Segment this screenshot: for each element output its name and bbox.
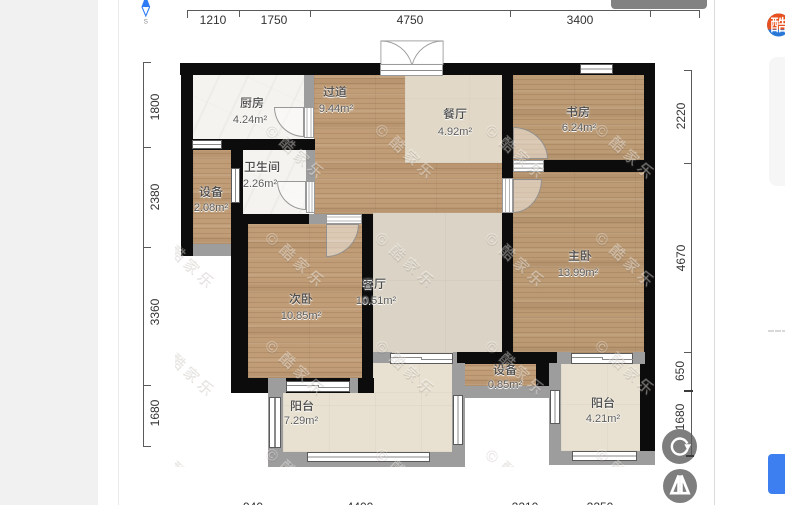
svg-text:©: ©: [591, 445, 614, 467]
svg-text:©: ©: [481, 337, 504, 360]
svg-text:©: ©: [371, 229, 394, 252]
svg-text:©: ©: [371, 121, 394, 144]
svg-text:©: ©: [591, 337, 614, 360]
svg-text:©: ©: [481, 121, 504, 144]
svg-text:©: ©: [261, 229, 284, 252]
svg-text:©: ©: [591, 229, 614, 252]
svg-text:©: ©: [481, 445, 504, 467]
svg-text:©: ©: [371, 337, 394, 360]
svg-text:S: S: [144, 19, 149, 26]
svg-text:©: ©: [261, 337, 284, 360]
svg-text:©: ©: [261, 445, 284, 467]
svg-text:©: ©: [481, 229, 504, 252]
svg-text:©: ©: [371, 445, 394, 467]
